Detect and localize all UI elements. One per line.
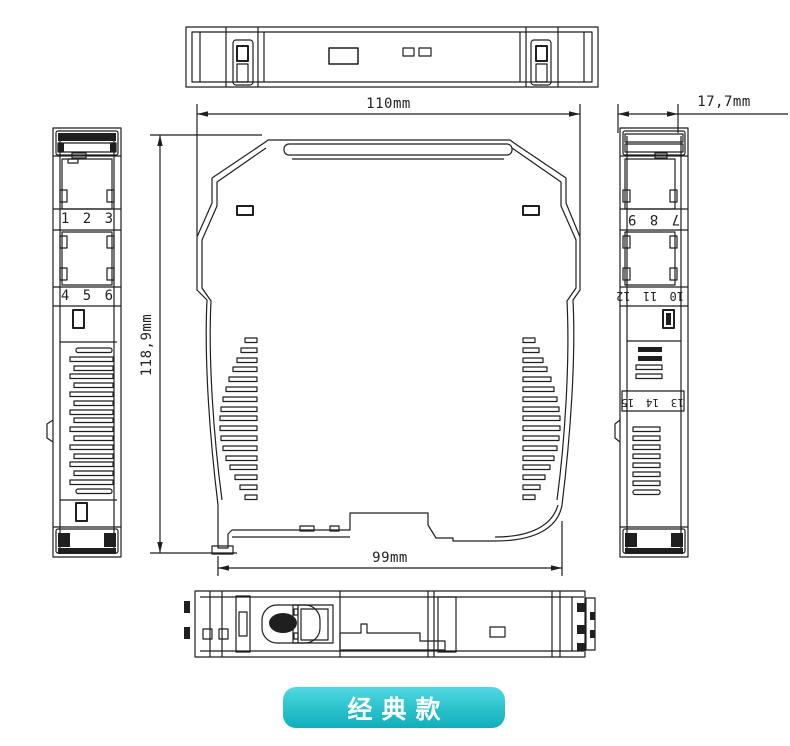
terminal-label-left-123: 1 2 3 [57, 211, 117, 227]
dim-overall-height: 118,9mm [139, 300, 155, 390]
din-module-dimension-drawing: 110mm 17,7mm 118,9mm 99mm 1 2 3 4 5 6 7 … [0, 0, 790, 746]
left-side-view-drawing [47, 128, 121, 557]
dim-depth: 17,7mm [664, 94, 784, 110]
classic-model-badge: 经典款 [283, 687, 505, 728]
terminal-label-right-131415: 13 14 15 [622, 396, 684, 409]
badge-label: 经典款 [347, 690, 449, 726]
top-view-drawing [186, 27, 598, 87]
right-side-view-drawing [615, 128, 688, 557]
terminal-label-left-456: 4 5 6 [57, 288, 117, 304]
dim-overall-width: 110mm [197, 96, 580, 112]
dimension-lines [150, 104, 788, 576]
bottom-view-drawing [184, 591, 595, 657]
dim-base-width: 99mm [218, 550, 562, 566]
terminal-label-right-101112: 10 11 12 [622, 289, 684, 303]
terminal-label-right-789: 7 8 9 [626, 211, 682, 227]
front-view-drawing [197, 140, 580, 554]
